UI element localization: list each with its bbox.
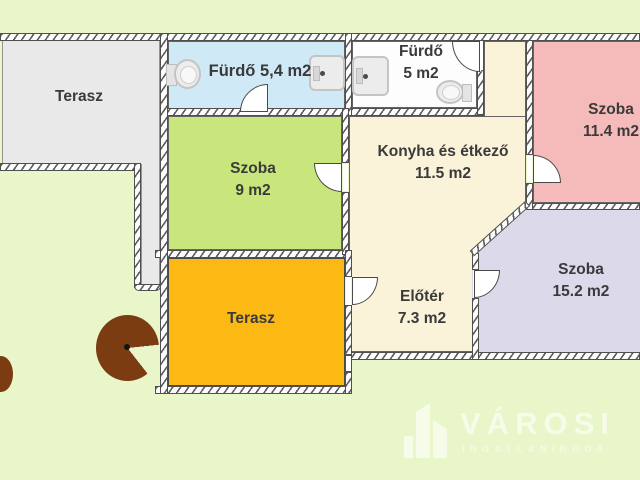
room-label-szoba-pink: Szoba 11.4 m2	[583, 99, 639, 143]
room-terasz-upper-strip	[141, 164, 160, 286]
wall-terasz-upper-bottom	[0, 163, 141, 171]
room-label-furdo-small: Fürdő 5,4 m2	[209, 60, 312, 82]
room-label-szoba-purple: Szoba 15.2 m2	[553, 259, 610, 303]
wall-left-spine	[160, 33, 168, 394]
wall-top-outer	[0, 33, 640, 41]
wall-green-bottom	[155, 250, 352, 258]
tree-icon	[96, 315, 159, 381]
varosi-watermark: VÁROSI INGATLANIRODA	[398, 394, 630, 466]
bathtub-icon-furdo-large	[352, 56, 389, 96]
building-icon	[404, 400, 452, 460]
room-corridor-strip	[484, 41, 526, 121]
wall-green-right-lower	[342, 192, 349, 255]
tree-icon-partial	[0, 356, 13, 392]
wall-terasz-lower-bottom	[155, 386, 352, 394]
wall-pink-left-upper	[526, 40, 533, 155]
wall-between-baths	[345, 33, 352, 116]
wall-eloter-terasz-lower	[345, 372, 352, 394]
wall-eloter-terasz-upper	[345, 250, 352, 277]
watermark-brand: VÁROSI	[460, 406, 615, 442]
watermark-tagline: INGATLANIRODA	[462, 444, 609, 455]
floorplan-canvas: Terasz Fürdő 5,4 m2 Fürdő 5 m2 Szoba 11.…	[0, 0, 640, 480]
room-label-eloter: Előtér 7.3 m2	[398, 286, 446, 330]
wall-strip-left	[134, 163, 141, 288]
bathtub-icon-furdo-small	[309, 55, 345, 91]
room-label-terasz-lower: Terasz	[227, 308, 275, 330]
room-label-szoba-green: Szoba 9 m2	[230, 158, 276, 202]
wall-green-right-upper	[342, 108, 349, 163]
room-label-konyha: Konyha és étkező 11.5 m2	[378, 141, 509, 185]
wall-pink-bottom	[526, 203, 640, 210]
wall-purple-left-lower	[472, 298, 479, 360]
terasz-window	[345, 355, 352, 372]
wall-strip-bottom-cap	[134, 284, 161, 291]
wall-bath-bottom	[160, 108, 484, 116]
room-label-furdo-large: Fürdő 5 m2	[399, 41, 443, 85]
room-label-terasz-upper: Terasz	[55, 86, 103, 108]
wall-eloter-terasz-mid	[345, 305, 352, 355]
wall-building-bottom	[345, 352, 640, 360]
